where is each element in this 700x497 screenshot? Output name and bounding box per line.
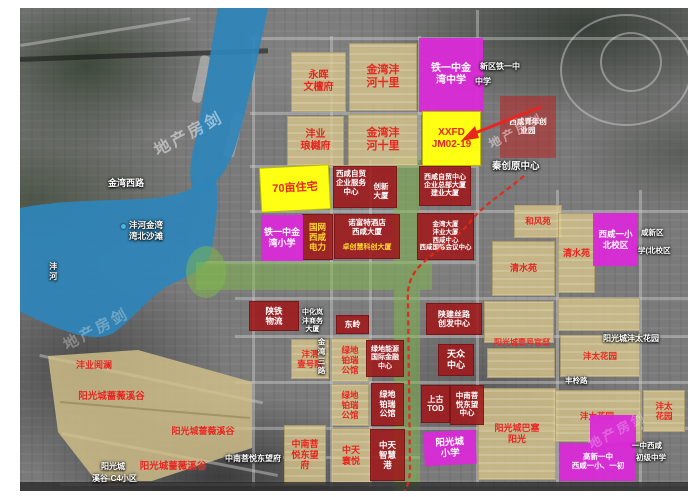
place-label: 初级中学 — [636, 453, 666, 462]
label-qiangwei-xigu-3: 阳光城蔷薇溪谷 — [128, 461, 218, 472]
label-chuji-zhongxue: 初级中学 — [636, 453, 666, 462]
parcel-label: 创新 大厦 — [367, 182, 395, 200]
parcel-xixian-yixiao-beixiaoqu: 西咸一小 北校区 — [593, 213, 638, 266]
parcel-label: 绿地 铂瑞 公馆 — [341, 390, 358, 420]
parcel-zhongnan-dongwang-zhongxin: 中南菩 悦东望 中心 — [450, 385, 484, 425]
parcel-lvdi-nengyuan: 绿地能源 国际金融 中心 — [366, 340, 404, 377]
label-jinwan-sanlu: 金湾三路 — [317, 338, 326, 376]
river-label: 沣河 — [49, 262, 58, 282]
label-qiangwei-xigu-1: 阳光城蔷薇溪谷 — [64, 391, 159, 402]
parcel-label: 陕铁 物流 — [265, 306, 282, 326]
green-park — [186, 246, 226, 298]
parcel-label: 沣业 琅樾府 — [301, 129, 331, 153]
place-label: 秦创原中心 — [492, 161, 540, 172]
place-label: 咸新区 — [641, 228, 664, 237]
place-label: 阳光城沣太花园 — [603, 334, 659, 343]
parcel-label: 铁一中金 湾小学 — [264, 227, 300, 248]
map-canvas[interactable]: 永晖 文檀府 金湾沣 河十里 沣业 琅樾府 金湾沣 河十里 和风苑 清水苑 清水… — [0, 0, 700, 497]
page-margin-left — [0, 0, 20, 497]
label-fenghe-river: 沣河 — [48, 262, 58, 282]
parcel-label: 东岭 — [345, 320, 361, 329]
parcel-label: 阳光城蔷薇溪谷 — [171, 426, 234, 436]
parcel-label: 铁一中金 湾中学 — [431, 63, 471, 87]
road-label: 金湾西路 — [108, 178, 144, 188]
parcel-label: 阳光城蔷薇溪谷 — [140, 461, 207, 472]
parcel-yihao-guandi-north — [484, 301, 554, 343]
parcel-label: 阳光城蔷薇溪谷 — [78, 391, 145, 402]
river — [190, 8, 268, 194]
road-label: 丰柃路 — [565, 376, 588, 385]
parcel-fengye-langyuefu: 沣业 琅樾府 — [287, 116, 344, 166]
parcel-label: 天众 中心 — [447, 349, 465, 370]
parcel-label: 西咸自贸 企业服务 中心 — [335, 169, 367, 196]
page-margin-bottom — [0, 491, 700, 497]
parcel-ximao-zongbu: 西咸自贸中心 企业总部大厦 建业大厦 — [419, 166, 471, 206]
place-label: 阳光城 — [101, 462, 125, 471]
parcel-70mu-zhuzhai: 70亩住宅 — [260, 165, 330, 211]
place-label: 学(北校区 — [638, 246, 671, 255]
parcel-shanjian-silu: 陕建丝路 创发中心 — [426, 303, 482, 335]
parcel-label: 阳光城巴塞 阳光 — [494, 423, 539, 444]
parcel-hefengyuan: 和风苑 — [514, 205, 562, 238]
label-zhongnan-dongwangfu: 中南菩悦东望府 — [225, 454, 281, 464]
parcel-label: 绿地 铂瑞 公馆 — [380, 390, 396, 418]
parcel-label: 沣太 花园 — [655, 401, 672, 421]
label-xianxinqu-frag1: 咸新区 — [641, 228, 664, 237]
parcel-label: 西咸一小 北校区 — [598, 229, 632, 249]
parcel-jinwan-dasha: 金湾大厦 沣业大厦 西咸中心 西咸国际会议中心 — [417, 213, 474, 260]
parcel-unlabeled-tan — [558, 298, 640, 331]
label-fenghe-jinwan: 沣河金湾 — [129, 220, 163, 230]
label-yangguang-fengtai: 阳光城沣太花园 — [603, 334, 659, 344]
parcel-label: 阳光城壹号官邸 — [494, 338, 550, 347]
parcel-yonghui-wentanfu: 永晖 文檀府 — [291, 52, 346, 112]
page-margin-right — [688, 0, 700, 497]
place-label: 一中西咸 — [632, 441, 662, 450]
place-label: 中化岚 沣商务 大厦 — [302, 309, 323, 333]
parcel-zhongtian-huanyue: 中天 寰悦 — [331, 428, 371, 483]
parcel-label: 高新一中 西咸一小、一初 — [572, 453, 625, 471]
parcel-label: 金湾沣 河十里 — [367, 127, 400, 153]
label-zhonghua-shangwu: 中化岚 沣商务 大厦 — [302, 309, 323, 335]
place-label: 中南菩悦东望府 — [225, 454, 281, 463]
parcel-label: 沣业阅澜 — [76, 360, 112, 370]
label-xianxinqu-frag2: 学(北校区 — [638, 246, 671, 255]
parcel-label: 绿地 铂瑞 公馆 — [341, 345, 358, 375]
parcel-label: 中南菩 悦东望 府 — [291, 439, 318, 471]
parcel-label: 国网 西咸 电力 — [309, 222, 326, 252]
parcel-label: 金湾沣 河十里 — [367, 64, 400, 90]
parcel-fengtai-huayuan-3: 沣太 花园 — [643, 390, 685, 432]
water-poi-icon — [121, 224, 126, 229]
parcel-label: 金湾大厦 沣业大厦 西咸中心 西咸国际会议中心 — [420, 221, 472, 252]
label-fengye-yuelan: 沣业阅澜 — [64, 360, 124, 371]
parcel-yangguang-xiaoxue: 阳光城 小学 — [423, 430, 477, 467]
parcel-label: 上古 TOD — [427, 395, 444, 414]
parcel-label: 陕建丝路 创发中心 — [438, 310, 470, 329]
parcel-tieyizhong-jinwan-xiaoxue: 铁一中金 湾小学 — [261, 215, 303, 261]
parcel-xxfd-jm02-19: XXFD JM02-19 — [423, 112, 480, 165]
parcel-ximao-fuwu-zhongxin: 西咸自贸 企业服务 中心 创新 大厦 — [333, 166, 397, 208]
parcel-lvdi-bairui-2: 绿地 铂瑞 公馆 — [331, 384, 369, 426]
map-screenshot: 永晖 文檀府 金湾沣 河十里 沣业 琅樾府 金湾沣 河十里 和风苑 清水苑 清水… — [0, 0, 700, 497]
label-qinchuangyuan: 秦创原中心 — [492, 161, 540, 173]
label-xinqu-tieyizhong: 新区铁一中 — [480, 62, 520, 72]
parcel-yihao-guandi-south — [487, 348, 555, 378]
place-label: 中学 — [475, 77, 491, 86]
parcel-tieyizhong-jinwan-zhongxue: 铁一中金 湾中学 — [419, 38, 483, 112]
page-margin-top — [0, 0, 700, 8]
place-label: 沣河金湾 — [129, 220, 163, 230]
label-qiangwei-xigu-2: 阳光城蔷薇溪谷 — [158, 426, 248, 437]
parcel-label: 清水苑 — [510, 263, 537, 274]
parcel-basai-yangguang: 阳光城巴塞 阳光 — [478, 388, 556, 480]
parcel-label: 诺富特酒店 西咸大厦 — [334, 218, 400, 236]
road-label: 金湾三路 — [317, 338, 326, 376]
parcel-qingshuiyuan-east: 清水苑 — [558, 213, 595, 293]
parcel-label: 西咸自贸中心 企业总部大厦 建业大厦 — [424, 174, 466, 199]
place-label: 湾北沙滩 — [129, 231, 163, 241]
label-c4-line1: 阳光城 — [101, 462, 125, 472]
parcel-jinwan-fenghe-shili-north: 金湾沣 河十里 — [349, 43, 417, 111]
parcel-label: 中天 寰悦 — [342, 445, 360, 466]
parcel-label: 70亩住宅 — [272, 181, 318, 196]
place-label: 溪谷-C4小区 — [92, 474, 137, 483]
label-yizhong-frag: 一中西咸 — [632, 441, 662, 450]
parcel-label: 永晖 文檀府 — [304, 70, 334, 94]
label-c4-line2: 溪谷-C4小区 — [92, 474, 137, 484]
parcel-label: 和风苑 — [525, 216, 551, 226]
label-zhongxue: 中学 — [475, 77, 491, 87]
parcel-lvdi-bairui-1: 绿地 铂瑞 公馆 — [331, 338, 369, 382]
place-label: 新区铁一中 — [480, 62, 520, 71]
parcel-jinwan-fenghe-shili-south: 金湾沣 河十里 — [348, 114, 418, 166]
parcel-tianzhong-zhongxin: 天众 中心 — [438, 344, 474, 376]
parcel-zhongnan-dongwangfu: 中南菩 悦东望 府 — [284, 425, 326, 485]
parcel-zhongtian-zhihuigang: 中天 智慧 港 — [370, 429, 405, 481]
parcel-label: 阳光城 小学 — [435, 436, 465, 460]
parcel-shanggu-tod: 上古 TOD — [421, 385, 450, 423]
parcel-label: 中天 智慧 港 — [379, 440, 396, 470]
parcel-lvdi-bairui-3: 绿地 铂瑞 公馆 — [371, 383, 404, 426]
label-fengling-lu: 丰柃路 — [565, 376, 588, 385]
parcel-label: 清水苑 — [563, 248, 590, 259]
label-wanbei-shatan: 湾北沙滩 — [129, 231, 163, 241]
parcel-nuofute-jiudian: 诺富特酒店 西咸大厦 卓创慧科创大厦 — [334, 214, 400, 259]
parcel-label: XXFD JM02-19 — [432, 127, 471, 151]
parcel-shantie-wuliu: 陕铁 物流 — [249, 301, 299, 331]
parcel-label: 沣太花园 — [583, 351, 617, 361]
parcel-label: 绿地能源 国际金融 中心 — [371, 346, 399, 371]
parcel-label: 卓创慧科创大厦 — [334, 244, 400, 252]
parcel-dongling: 东岭 — [336, 315, 369, 334]
label-yihao-guandi: 阳光城壹号官邸 — [486, 338, 558, 348]
parcel-guowang-dianli: 国网 西咸 电力 — [302, 214, 333, 260]
parcel-label: 中南菩 悦东望 中心 — [456, 392, 479, 419]
parcel-qingshuiyuan-west: 清水苑 — [492, 241, 555, 296]
label-jinwan-xilu: 金湾西路 — [108, 178, 144, 189]
